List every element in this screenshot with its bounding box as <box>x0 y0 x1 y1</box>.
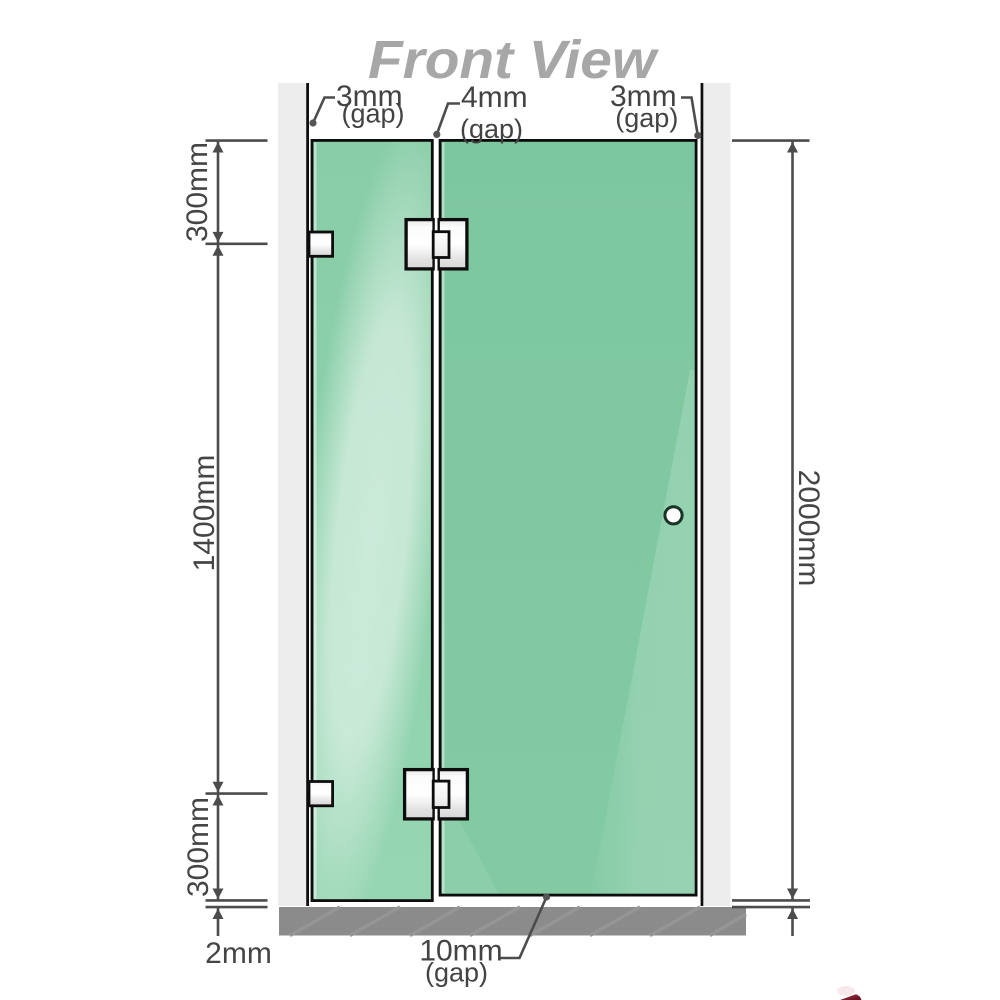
svg-text:4mm: 4mm <box>461 81 528 114</box>
svg-text:300mm: 300mm <box>181 142 214 242</box>
svg-text:(gap): (gap) <box>425 958 488 988</box>
svg-text:(gap): (gap) <box>615 103 678 133</box>
svg-text:1400mm: 1400mm <box>188 455 221 572</box>
svg-text:2000mm: 2000mm <box>792 470 825 587</box>
svg-text:300mm: 300mm <box>182 797 215 897</box>
svg-text:(gap): (gap) <box>460 114 523 144</box>
svg-text:(gap): (gap) <box>341 99 404 129</box>
svg-text:2mm: 2mm <box>205 937 272 970</box>
